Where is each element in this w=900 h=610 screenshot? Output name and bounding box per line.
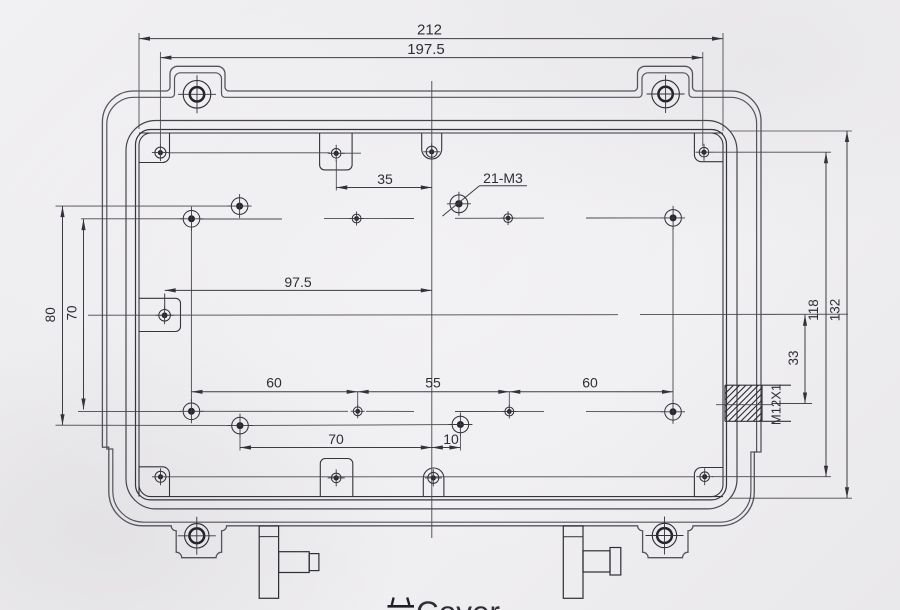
svg-text:60: 60 [582, 375, 598, 391]
svg-text:55: 55 [425, 375, 441, 391]
svg-text:33: 33 [786, 350, 801, 365]
svg-text:60: 60 [266, 375, 282, 391]
svg-text:10: 10 [443, 431, 459, 447]
svg-text:97.5: 97.5 [284, 274, 311, 290]
svg-text:M12X1: M12X1 [769, 384, 784, 425]
svg-text:35: 35 [377, 171, 393, 187]
svg-text:70: 70 [328, 431, 344, 447]
svg-text:Cover: Cover [416, 594, 500, 610]
svg-text:118: 118 [806, 299, 821, 321]
svg-text:197.5: 197.5 [407, 41, 445, 58]
svg-text:80: 80 [43, 307, 58, 322]
svg-text:212: 212 [417, 22, 442, 39]
svg-text:21-M3: 21-M3 [483, 170, 523, 186]
svg-text:132: 132 [828, 299, 843, 322]
svg-text:70: 70 [65, 305, 80, 320]
